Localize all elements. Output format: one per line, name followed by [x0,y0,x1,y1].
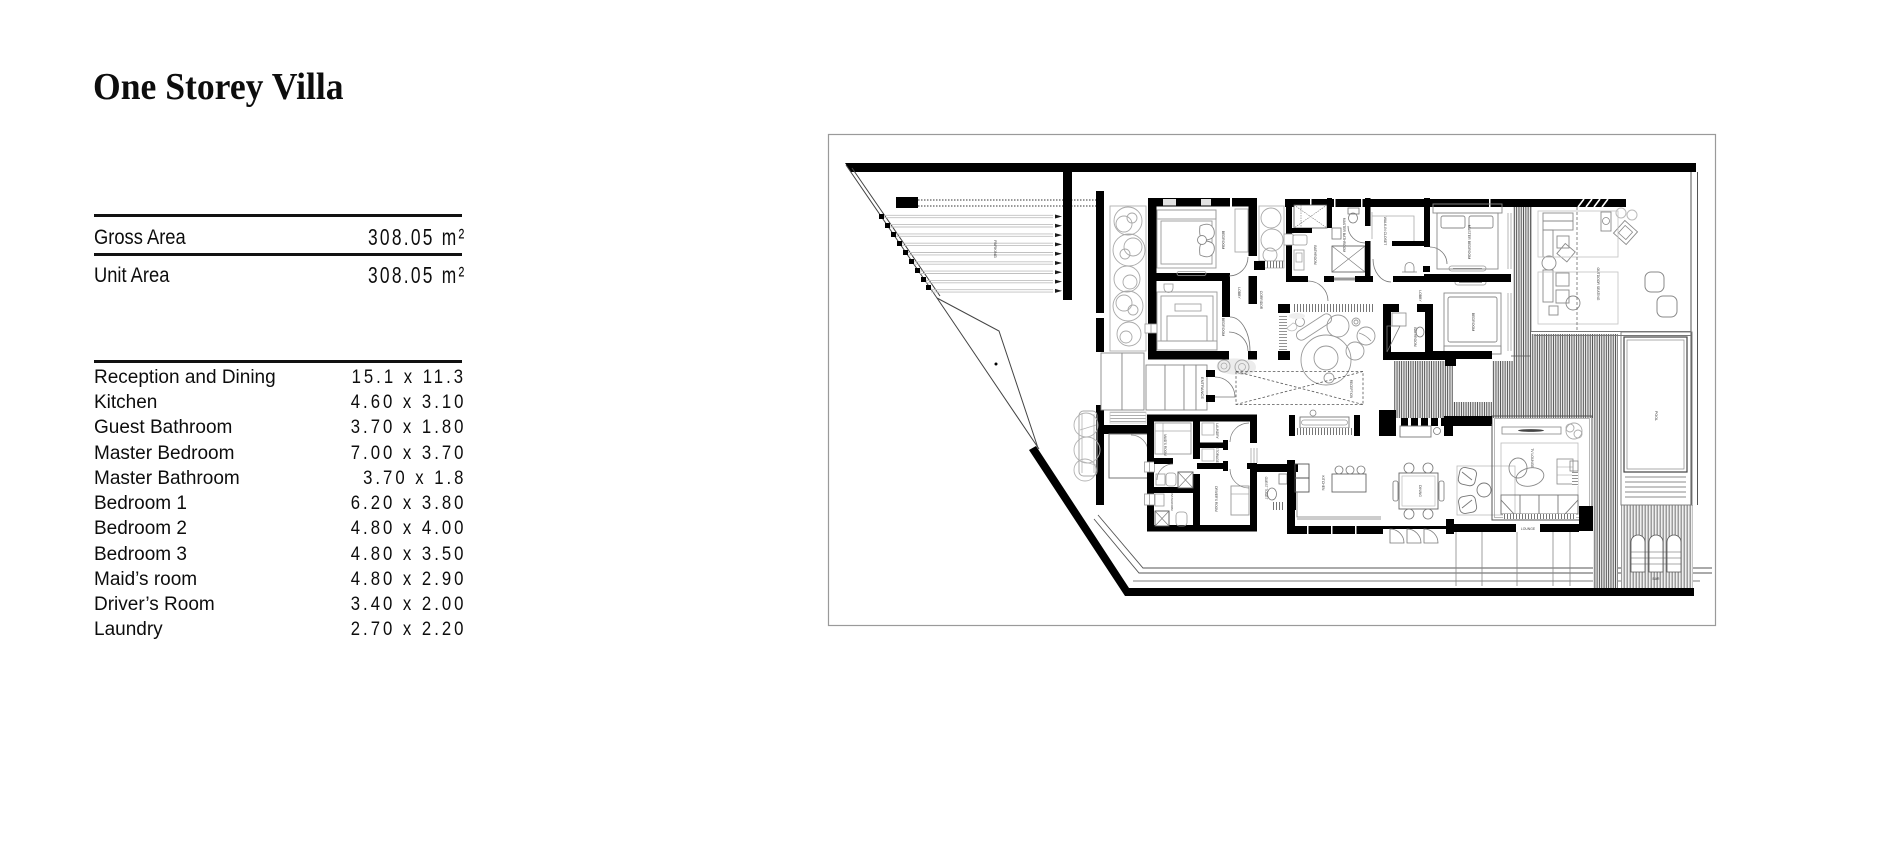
svg-text:MASTER BATHROOM: MASTER BATHROOM [1342,218,1346,253]
svg-text:LOBBY: LOBBY [1237,287,1241,299]
svg-text:PARKING: PARKING [993,240,998,258]
svg-text:BATHROOM: BATHROOM [1313,245,1317,265]
svg-text:LOUNGE: LOUNGE [1521,527,1536,531]
svg-text:GUEST TOILET: GUEST TOILET [1264,477,1268,500]
svg-text:ENTRANCE: ENTRANCE [1200,377,1205,399]
svg-text:BATHROOM: BATHROOM [1413,327,1417,347]
svg-text:MAID'S ROOM: MAID'S ROOM [1163,434,1167,456]
svg-text:BEDROOM: BEDROOM [1221,231,1225,250]
svg-text:POOL: POOL [1654,411,1658,421]
svg-text:LOBBY: LOBBY [1418,290,1422,302]
svg-text:STORAGE: STORAGE [1215,447,1219,463]
svg-text:MASTER BEDROOM: MASTER BEDROOM [1467,225,1471,260]
svg-text:WALK-IN CLOSET: WALK-IN CLOSET [1383,217,1387,246]
svg-text:BATHROOM: BATHROOM [1170,493,1174,511]
svg-text:TV LOUNGE: TV LOUNGE [1530,448,1534,468]
svg-text:OUTDOOR SEATING: OUTDOOR SEATING [1596,268,1600,301]
svg-text:LAUNDRY: LAUNDRY [1215,423,1219,439]
svg-text:BEDROOM: BEDROOM [1471,313,1475,332]
svg-text:DRIVER'S ROOM: DRIVER'S ROOM [1214,486,1218,512]
svg-text:KITCHEN: KITCHEN [1321,476,1325,491]
svg-text:DINING: DINING [1418,485,1422,497]
svg-text:CORRIDOR: CORRIDOR [1259,291,1263,310]
svg-text:BAR: BAR [1653,577,1661,581]
svg-text:BEDROOM: BEDROOM [1221,318,1225,337]
svg-text:RECEPTION: RECEPTION [1349,380,1353,399]
